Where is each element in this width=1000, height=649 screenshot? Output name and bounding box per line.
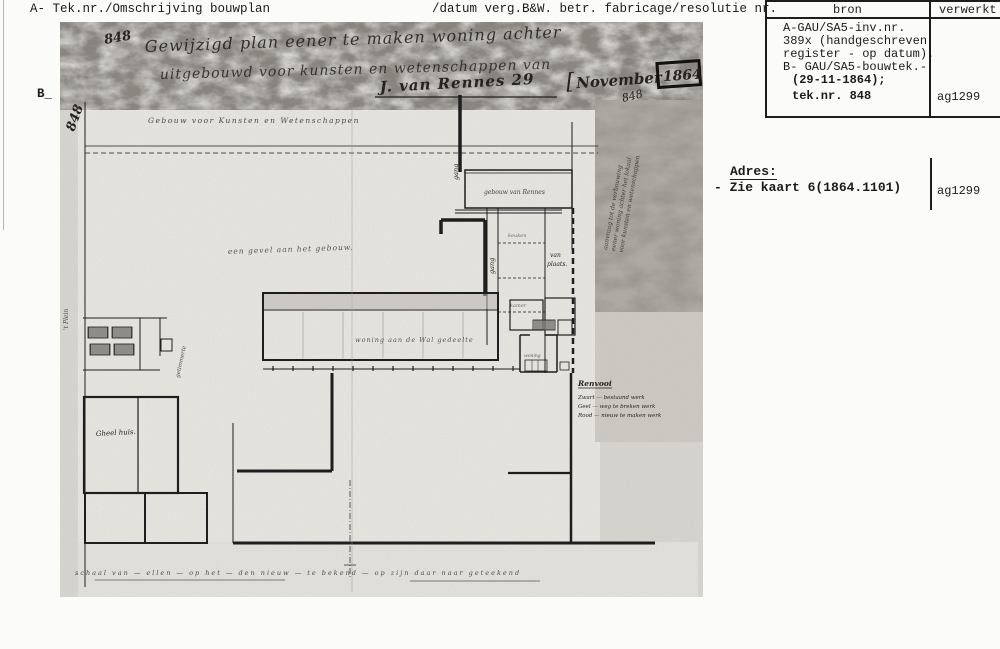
table-header-rule — [767, 17, 1000, 19]
bottom-note: schaal van — ellen — op het — den nieuw … — [75, 569, 521, 577]
legend-item: Zwart — bestaand werk — [577, 395, 645, 401]
verwerkt-value: ag1299 — [937, 90, 980, 104]
adres-verwerkt-value: ag1299 — [937, 184, 980, 198]
adres-label: Adres: — [730, 164, 777, 180]
adres-value: - Zie kaart 6(1864.1101) — [714, 180, 901, 195]
label-room-top: gebouw van Rennes — [484, 189, 545, 196]
label-gang-2: gang — [488, 258, 496, 274]
archive-card: A- Tek.nr./Omschrijving bouwplan /datum … — [0, 0, 1000, 649]
legend-title: Renvooi — [577, 379, 612, 388]
legend-item: Rood — nieuw te maken werk — [577, 413, 662, 419]
column-header-verwerkt: verwerkt — [939, 3, 997, 17]
label-plaats-1: van — [550, 252, 561, 259]
bron-line: 389x (handgeschreven — [783, 34, 927, 48]
label-plaats-2: plaats. — [547, 261, 567, 268]
label-gang-1: gang — [452, 164, 460, 180]
stamp-year: 1864 — [662, 66, 702, 85]
header-right: /datum verg.B&W. betr. fabricage/resolut… — [432, 2, 777, 16]
column-header-bron: bron — [833, 3, 862, 17]
margin-note: 't Plein — [63, 309, 70, 330]
label-woning-small: woning — [524, 353, 541, 359]
label-central: woning aan de Wal gedeelte — [355, 336, 474, 344]
bron-line: register - op datum). — [783, 47, 934, 61]
adres-separator-line — [930, 158, 932, 210]
bron-line-bold: tek.nr. 848 — [792, 89, 871, 103]
bron-line-bold: (29-11-1864); — [792, 73, 886, 87]
bron-table: bron verwerkt A-GAU/SA5-inv.nr. 389x (ha… — [765, 0, 1000, 118]
bron-line: B- GAU/SA5-bouwtek.- — [783, 60, 927, 74]
label-kamer: kamer — [510, 303, 527, 309]
label-keuken: keuken — [508, 233, 526, 239]
header-left: A- Tek.nr./Omschrijving bouwplan — [30, 2, 270, 16]
bron-line: A-GAU/SA5-inv.nr. — [783, 21, 905, 35]
floor-plan-svg: 848 Gewijzigd plan eener te maken woning… — [60, 22, 703, 597]
legend-item: Geel — weg te breken werk — [578, 404, 656, 410]
card-left-border — [3, 0, 4, 230]
section-b-label: B_ — [37, 87, 52, 101]
caption-top: Gebouw voor Kunsten en Wetenschappen — [148, 116, 360, 125]
scanned-drawing-photo: 848 Gewijzigd plan eener te maken woning… — [60, 22, 703, 597]
